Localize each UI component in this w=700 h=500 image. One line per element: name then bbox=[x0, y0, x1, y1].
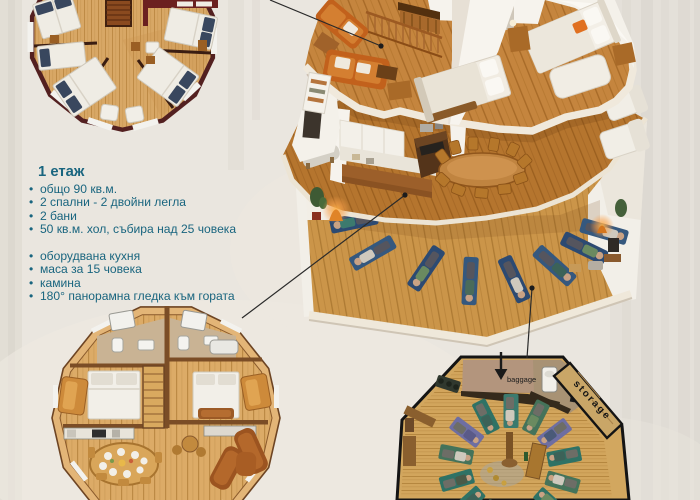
svg-text:baggage: baggage bbox=[507, 375, 536, 384]
